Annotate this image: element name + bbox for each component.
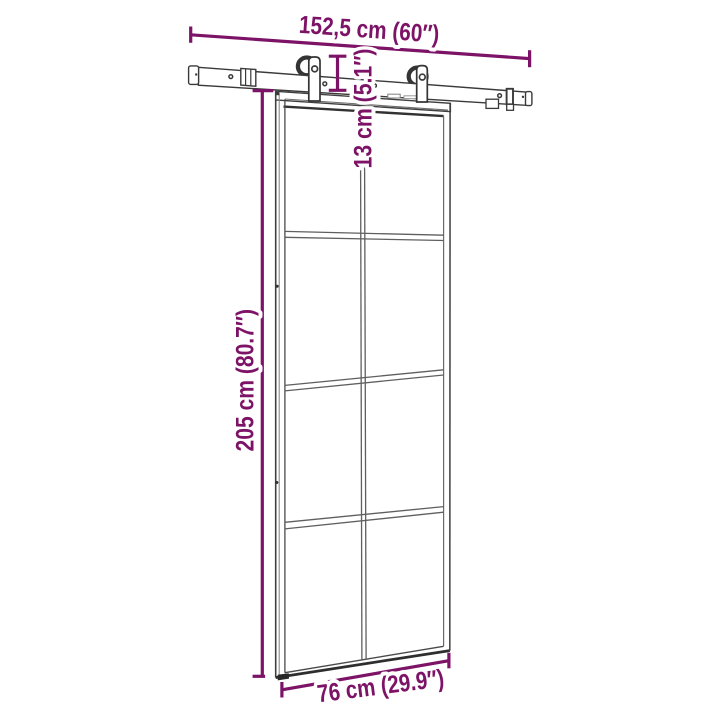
svg-text:13 cm (5.1″): 13 cm (5.1″) — [349, 49, 377, 169]
svg-text:205 cm (80.7″): 205 cm (80.7″) — [231, 309, 259, 452]
